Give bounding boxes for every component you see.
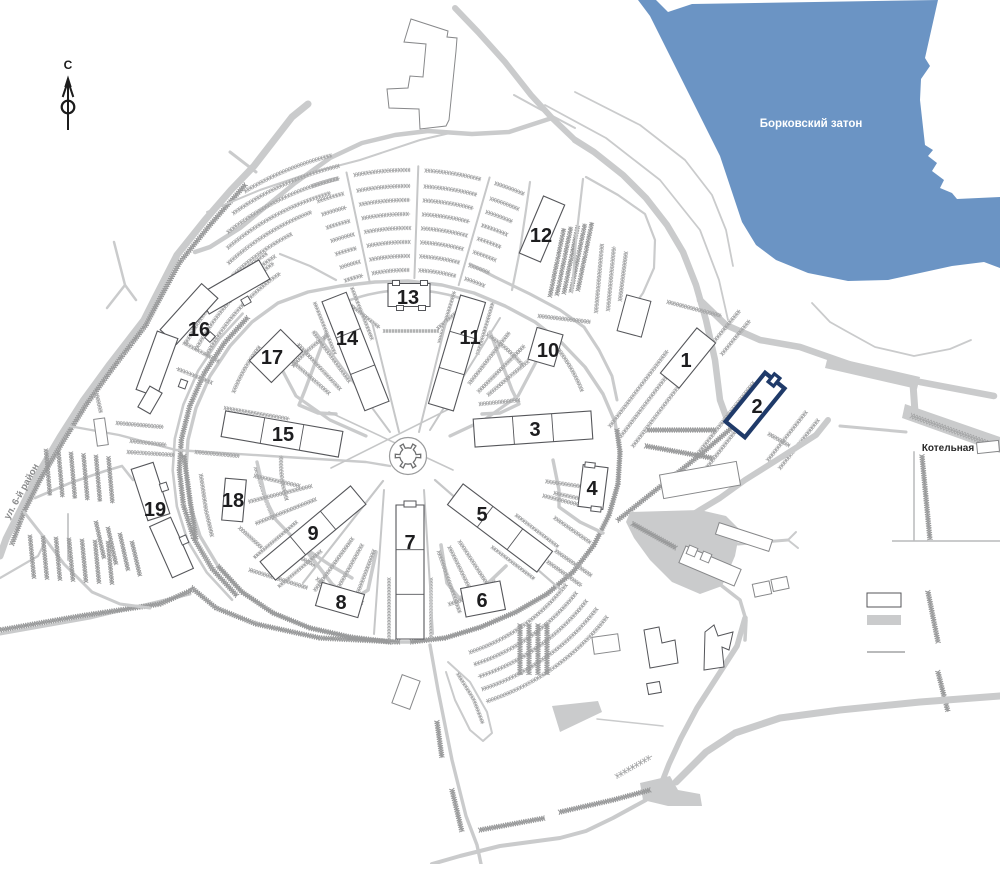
svg-text:2: 2: [751, 396, 762, 418]
svg-text:14: 14: [336, 328, 359, 350]
svg-text:3: 3: [529, 419, 540, 441]
svg-text:6: 6: [476, 590, 487, 612]
svg-text:19: 19: [144, 499, 166, 521]
svg-text:17: 17: [261, 347, 283, 369]
svg-text:10: 10: [537, 340, 559, 362]
svg-text:Борковский затон: Борковский затон: [760, 118, 863, 130]
svg-text:С: С: [64, 58, 73, 72]
svg-text:Котельная: Котельная: [922, 443, 975, 454]
svg-text:16: 16: [188, 319, 210, 341]
svg-text:1: 1: [680, 350, 691, 372]
svg-text:11: 11: [459, 327, 480, 349]
svg-text:7: 7: [404, 532, 415, 554]
svg-text:9: 9: [307, 523, 318, 545]
svg-text:8: 8: [335, 592, 346, 614]
svg-text:4: 4: [586, 478, 598, 500]
svg-text:12: 12: [530, 225, 552, 247]
svg-text:5: 5: [476, 504, 487, 526]
svg-text:18: 18: [222, 490, 244, 512]
svg-text:13: 13: [397, 287, 419, 309]
svg-text:15: 15: [272, 424, 294, 446]
